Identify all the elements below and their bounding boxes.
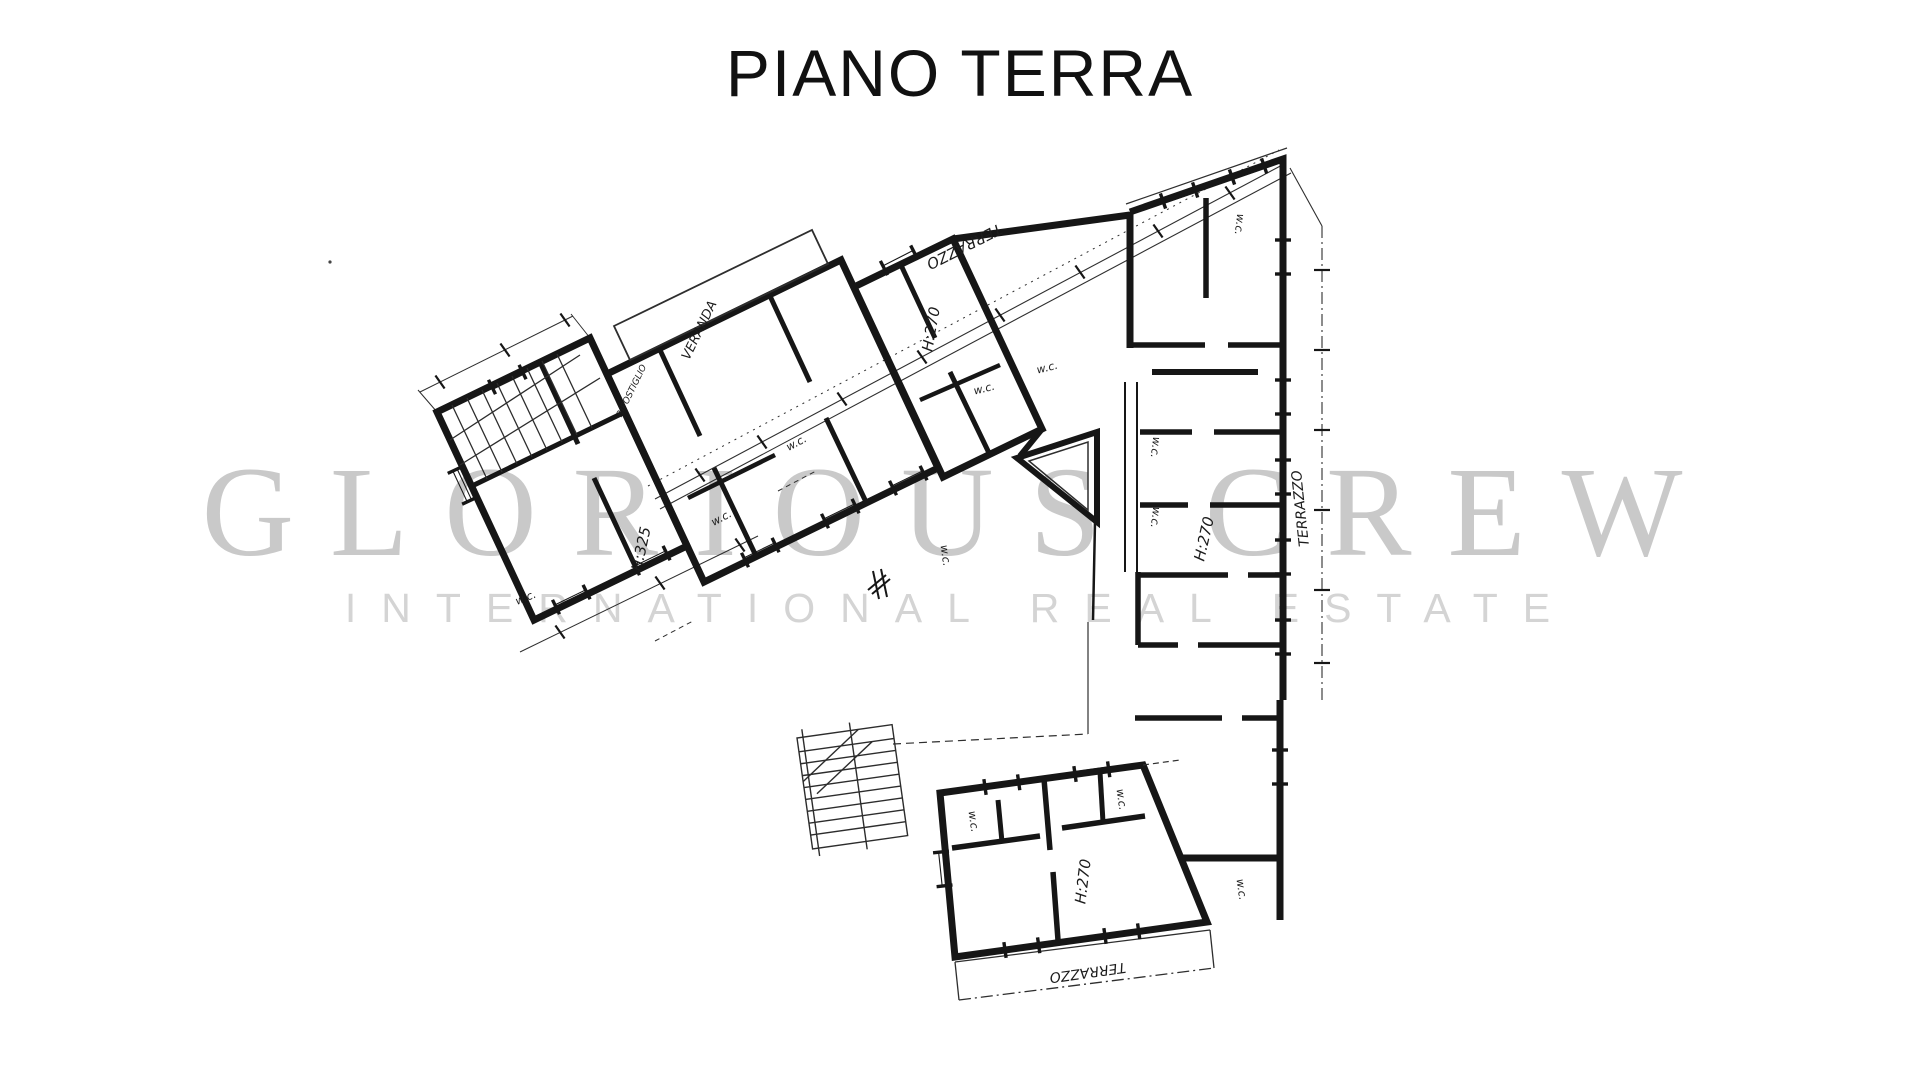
label-h270-bottom: H:270 — [1071, 858, 1094, 905]
plan-labels: TERRAZZO H:270 VERANDA RIPOSTIGLIO H:325… — [513, 213, 1313, 985]
label-wc: w.c. — [1148, 436, 1164, 459]
label-wc: w.c. — [1035, 359, 1059, 377]
label-terrazzo-right: TERRAZZO — [1289, 469, 1313, 547]
label-wc: w.c. — [966, 810, 982, 833]
label-wc: w.c. — [1114, 788, 1130, 811]
label-wc: w.c. — [709, 507, 734, 528]
veranda-strip — [614, 230, 828, 360]
label-ripostiglio: RIPOSTIGLIO — [615, 363, 649, 419]
label-wc: w.c. — [972, 380, 996, 398]
label-wc: w.c. — [1234, 878, 1250, 901]
label-terrazzo-bottom: TERRAZZO — [1048, 959, 1126, 986]
floorplan-page: GLORIOUS CREW INTERNATIONAL REAL ESTATE — [0, 0, 1920, 1080]
label-wc: w.c. — [784, 432, 809, 453]
page-title: PIANO TERRA — [0, 40, 1920, 106]
staircase-external — [796, 717, 909, 857]
label-veranda: VERANDA — [679, 299, 720, 363]
label-h270-right: H:270 — [1190, 515, 1218, 563]
label-wc: w.c. — [938, 544, 954, 567]
hatch-mark — [868, 569, 890, 599]
ink-speck — [328, 260, 331, 263]
left-wing-walls — [437, 215, 1130, 620]
label-wc: w.c. — [1232, 213, 1248, 236]
floorplan-canvas: TERRAZZO H:270 VERANDA RIPOSTIGLIO H:325… — [0, 0, 1920, 1080]
label-wc: w.c. — [1148, 506, 1164, 529]
